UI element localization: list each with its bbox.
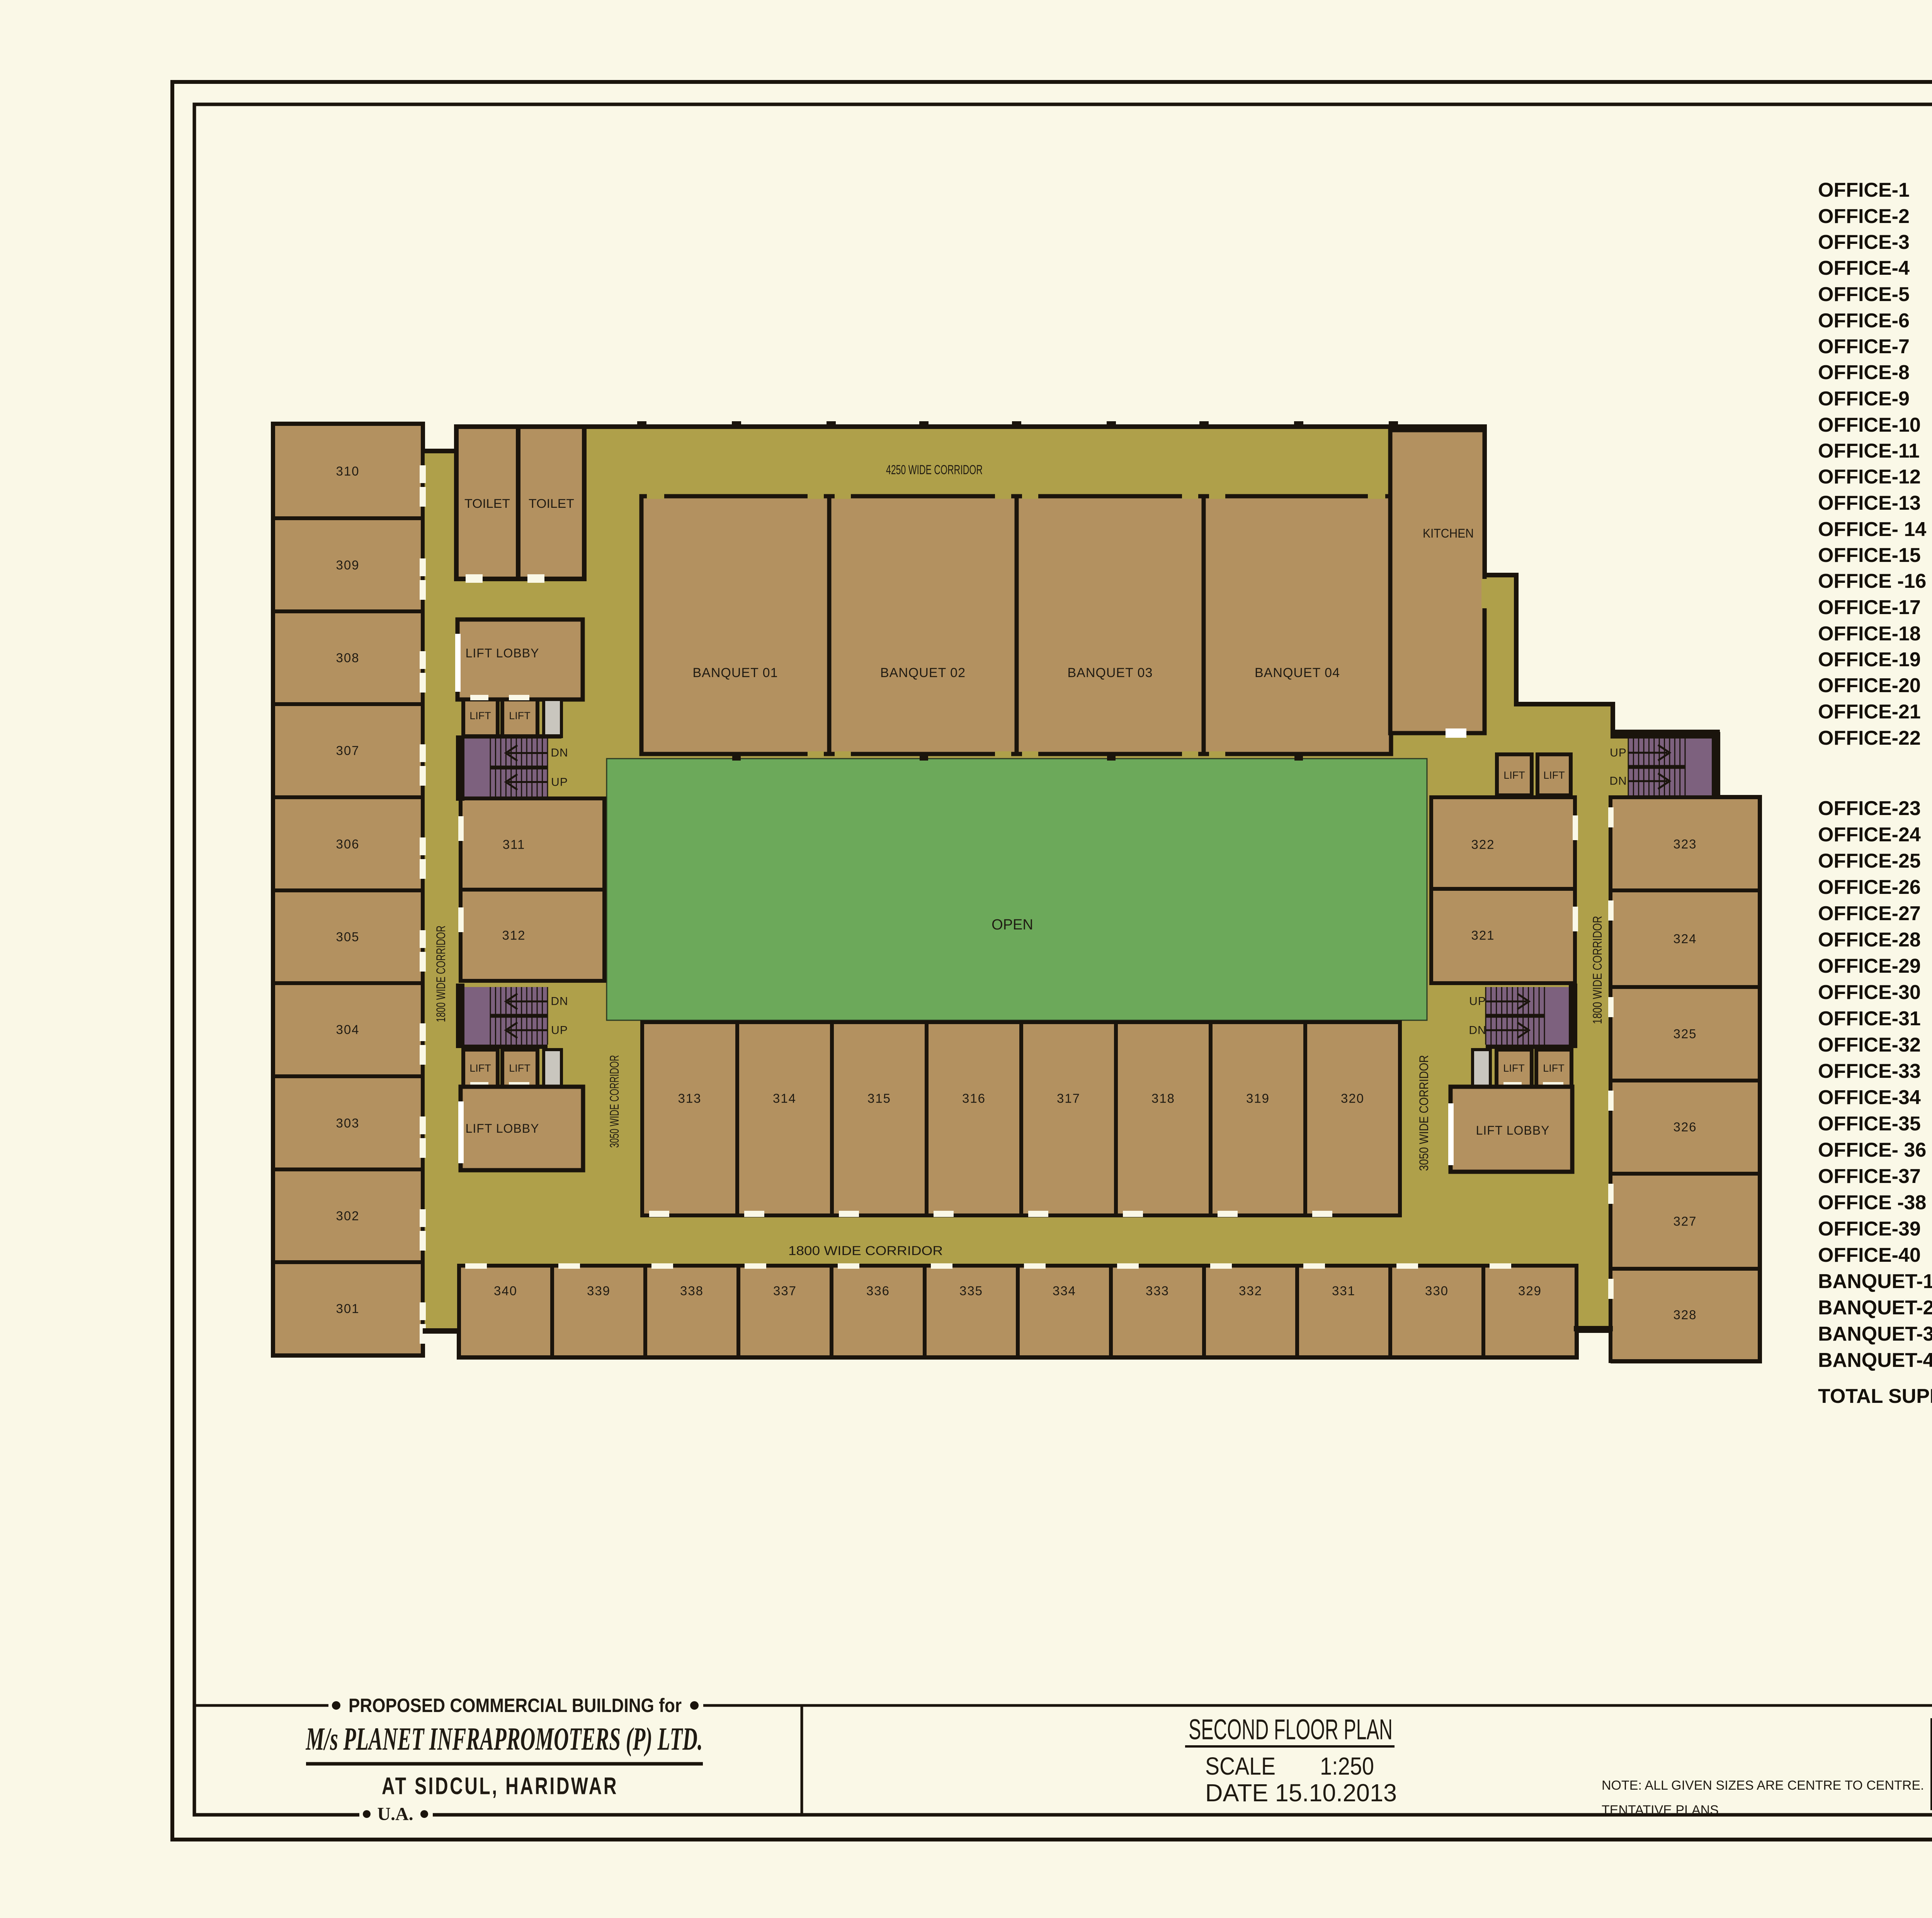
svg-text:PROPOSED COMMERCIAL BUILDING f: PROPOSED COMMERCIAL BUILDING for xyxy=(349,1695,682,1716)
svg-text:OFFICE-32: OFFICE-32 xyxy=(1818,1034,1921,1056)
svg-text:OFFICE-18: OFFICE-18 xyxy=(1818,623,1921,645)
svg-text:OFFICE-1: OFFICE-1 xyxy=(1818,179,1910,201)
svg-text:DN: DN xyxy=(1469,1024,1486,1037)
svg-text:311: 311 xyxy=(503,837,526,852)
svg-text:LIFT LOBBY: LIFT LOBBY xyxy=(466,646,539,660)
svg-text:314: 314 xyxy=(773,1091,796,1106)
svg-text:OFFICE-17: OFFICE-17 xyxy=(1818,596,1921,619)
svg-text:1:250: 1:250 xyxy=(1320,1752,1374,1780)
svg-text:OFFICE-21: OFFICE-21 xyxy=(1818,701,1921,723)
svg-text:OFFICE-23: OFFICE-23 xyxy=(1818,797,1921,820)
svg-text:LIFT: LIFT xyxy=(509,1062,531,1074)
svg-text:LIFT LOBBY: LIFT LOBBY xyxy=(1476,1123,1550,1137)
svg-text:319: 319 xyxy=(1246,1091,1270,1106)
svg-text:336: 336 xyxy=(866,1284,890,1298)
svg-text:LIFT: LIFT xyxy=(1543,1062,1565,1074)
svg-text:DN: DN xyxy=(551,747,568,759)
svg-text:UP: UP xyxy=(1469,995,1486,1008)
svg-text:331: 331 xyxy=(1332,1284,1355,1298)
svg-text:325: 325 xyxy=(1673,1027,1697,1041)
svg-text:BANQUET-3: BANQUET-3 xyxy=(1818,1323,1932,1345)
svg-text:OFFICE-13: OFFICE-13 xyxy=(1818,492,1921,514)
svg-text:OFFICE-5: OFFICE-5 xyxy=(1818,283,1910,306)
svg-text:OPEN: OPEN xyxy=(992,917,1033,933)
svg-text:BANQUET 01: BANQUET 01 xyxy=(692,665,778,680)
svg-text:OFFICE-27: OFFICE-27 xyxy=(1818,902,1921,925)
svg-text:329: 329 xyxy=(1518,1284,1542,1298)
svg-text:M/s PLANET INFRAPROMOTERS (P): M/s PLANET INFRAPROMOTERS (P) LTD. xyxy=(305,1721,702,1757)
svg-text:OFFICE -16: OFFICE -16 xyxy=(1818,570,1926,592)
svg-text:OFFICE-28: OFFICE-28 xyxy=(1818,929,1921,951)
svg-text:3050 WIDE CORRIDOR: 3050 WIDE CORRIDOR xyxy=(607,1055,621,1148)
svg-text:DN: DN xyxy=(551,995,568,1008)
svg-text:317: 317 xyxy=(1057,1091,1080,1106)
svg-text:OFFICE-24: OFFICE-24 xyxy=(1818,824,1921,846)
svg-text:337: 337 xyxy=(773,1284,797,1298)
svg-text:OFFICE-25: OFFICE-25 xyxy=(1818,850,1921,872)
svg-text:OFFICE-6: OFFICE-6 xyxy=(1818,310,1910,332)
svg-text:OFFICE-39: OFFICE-39 xyxy=(1818,1218,1921,1240)
svg-text:U.A.: U.A. xyxy=(377,1804,413,1824)
svg-text:1800 WIDE CORRIDOR: 1800 WIDE CORRIDOR xyxy=(788,1244,943,1258)
svg-text:328: 328 xyxy=(1673,1308,1697,1322)
svg-text:DATE 15.10.2013: DATE 15.10.2013 xyxy=(1205,1779,1397,1807)
svg-text:UP: UP xyxy=(1610,747,1627,759)
svg-text:LIFT LOBBY: LIFT LOBBY xyxy=(466,1122,539,1135)
svg-text:310: 310 xyxy=(336,464,359,478)
svg-text:301: 301 xyxy=(336,1302,359,1316)
svg-text:327: 327 xyxy=(1673,1214,1697,1229)
svg-text:316: 316 xyxy=(962,1091,986,1106)
svg-text:OFFICE-20: OFFICE-20 xyxy=(1818,674,1921,697)
svg-text:OFFICE- 36: OFFICE- 36 xyxy=(1818,1139,1926,1161)
svg-text:332: 332 xyxy=(1239,1284,1262,1298)
svg-text:TOILET: TOILET xyxy=(464,497,510,511)
svg-text:BANQUET-4: BANQUET-4 xyxy=(1818,1349,1932,1372)
svg-text:LIFT: LIFT xyxy=(469,710,491,722)
svg-text:1800 WIDE CORRIDOR: 1800 WIDE CORRIDOR xyxy=(434,926,448,1022)
svg-text:BANQUET 03: BANQUET 03 xyxy=(1067,665,1153,680)
svg-text:UP: UP xyxy=(551,1024,568,1037)
svg-text:OFFICE- 14: OFFICE- 14 xyxy=(1818,518,1926,541)
svg-text:OFFICE-4: OFFICE-4 xyxy=(1818,257,1910,279)
svg-text:OFFICE-37: OFFICE-37 xyxy=(1818,1165,1921,1188)
svg-text:SCALE: SCALE xyxy=(1205,1752,1276,1780)
svg-text:305: 305 xyxy=(336,930,359,944)
svg-text:323: 323 xyxy=(1673,837,1697,851)
svg-text:BANQUET-2: BANQUET-2 xyxy=(1818,1297,1932,1319)
svg-text:OFFICE-30: OFFICE-30 xyxy=(1818,981,1921,1004)
svg-text:LIFT: LIFT xyxy=(509,710,531,722)
svg-text:303: 303 xyxy=(336,1116,359,1130)
svg-text:OFFICE-31: OFFICE-31 xyxy=(1818,1008,1921,1030)
svg-text:340: 340 xyxy=(494,1284,517,1298)
svg-text:322: 322 xyxy=(1471,837,1495,852)
svg-text:334: 334 xyxy=(1053,1284,1076,1298)
svg-text:3050 WIDE CORRIDOR: 3050 WIDE CORRIDOR xyxy=(1417,1055,1431,1171)
svg-text:LIFT: LIFT xyxy=(469,1062,491,1074)
svg-text:324: 324 xyxy=(1673,932,1697,946)
svg-text:OFFICE-9: OFFICE-9 xyxy=(1818,388,1910,410)
svg-text:TOILET: TOILET xyxy=(529,497,574,511)
svg-text:KITCHEN: KITCHEN xyxy=(1423,526,1474,540)
svg-text:OFFICE-19: OFFICE-19 xyxy=(1818,648,1921,671)
svg-text:OFFICE-11: OFFICE-11 xyxy=(1818,440,1920,462)
svg-text:AT SIDCUL, HARIDWAR: AT SIDCUL, HARIDWAR xyxy=(382,1773,618,1800)
svg-text:306: 306 xyxy=(336,837,359,851)
svg-text:338: 338 xyxy=(680,1284,704,1298)
svg-text:1800 WIDE CORRIDOR: 1800 WIDE CORRIDOR xyxy=(1590,916,1604,1024)
svg-text:315: 315 xyxy=(867,1091,891,1106)
svg-text:OFFICE-22: OFFICE-22 xyxy=(1818,727,1921,749)
svg-text:OFFICE-8: OFFICE-8 xyxy=(1818,361,1910,384)
svg-text:DN: DN xyxy=(1609,775,1627,788)
svg-text:OFFICE -38: OFFICE -38 xyxy=(1818,1191,1926,1214)
svg-text:OFFICE-10: OFFICE-10 xyxy=(1818,414,1921,436)
svg-text:SECOND FLOOR PLAN: SECOND FLOOR PLAN xyxy=(1189,1714,1393,1746)
svg-text:BANQUET-1: BANQUET-1 xyxy=(1818,1270,1932,1293)
svg-text:OFFICE-40: OFFICE-40 xyxy=(1818,1244,1921,1266)
svg-text:NOTE: ALL GIVEN SIZES ARE CENT: NOTE: ALL GIVEN SIZES ARE CENTRE TO CENT… xyxy=(1602,1778,1924,1793)
svg-text:321: 321 xyxy=(1471,928,1495,943)
svg-text:326: 326 xyxy=(1673,1120,1697,1134)
svg-text:OFFICE-7: OFFICE-7 xyxy=(1818,335,1910,358)
svg-text:OFFICE-33: OFFICE-33 xyxy=(1818,1060,1921,1082)
svg-text:304: 304 xyxy=(336,1023,359,1037)
svg-text:308: 308 xyxy=(336,651,359,665)
svg-text:302: 302 xyxy=(336,1209,359,1223)
svg-text:335: 335 xyxy=(959,1284,983,1298)
svg-text:333: 333 xyxy=(1146,1284,1169,1298)
svg-text:TOTAL SUPER AREA: TOTAL SUPER AREA xyxy=(1818,1385,1932,1407)
svg-text:OFFICE-34: OFFICE-34 xyxy=(1818,1086,1921,1109)
svg-text:309: 309 xyxy=(336,558,359,572)
svg-text:4250 WIDE CORRIDOR: 4250 WIDE CORRIDOR xyxy=(886,463,983,477)
svg-text:339: 339 xyxy=(587,1284,611,1298)
svg-text:LIFT: LIFT xyxy=(1543,769,1565,781)
svg-text:TENTATIVE PLANS: TENTATIVE PLANS xyxy=(1602,1803,1719,1818)
svg-text:BANQUET 04: BANQUET 04 xyxy=(1255,665,1340,680)
svg-text:UP: UP xyxy=(551,776,568,789)
svg-text:318: 318 xyxy=(1151,1091,1175,1106)
svg-text:OFFICE-26: OFFICE-26 xyxy=(1818,876,1921,899)
svg-text:OFFICE-2: OFFICE-2 xyxy=(1818,205,1910,228)
svg-text:OFFICE-12: OFFICE-12 xyxy=(1818,466,1921,488)
svg-text:LIFT: LIFT xyxy=(1503,1062,1525,1074)
svg-text:OFFICE-29: OFFICE-29 xyxy=(1818,955,1921,977)
svg-text:LIFT: LIFT xyxy=(1503,769,1525,781)
svg-text:OFFICE-15: OFFICE-15 xyxy=(1818,544,1921,567)
svg-text:313: 313 xyxy=(678,1091,701,1106)
svg-text:330: 330 xyxy=(1425,1284,1449,1298)
svg-text:307: 307 xyxy=(336,744,359,758)
svg-text:OFFICE-35: OFFICE-35 xyxy=(1818,1113,1921,1135)
svg-text:320: 320 xyxy=(1341,1091,1364,1106)
svg-text:BANQUET 02: BANQUET 02 xyxy=(880,665,966,680)
svg-text:OFFICE-3: OFFICE-3 xyxy=(1818,231,1910,254)
svg-text:312: 312 xyxy=(502,928,526,943)
